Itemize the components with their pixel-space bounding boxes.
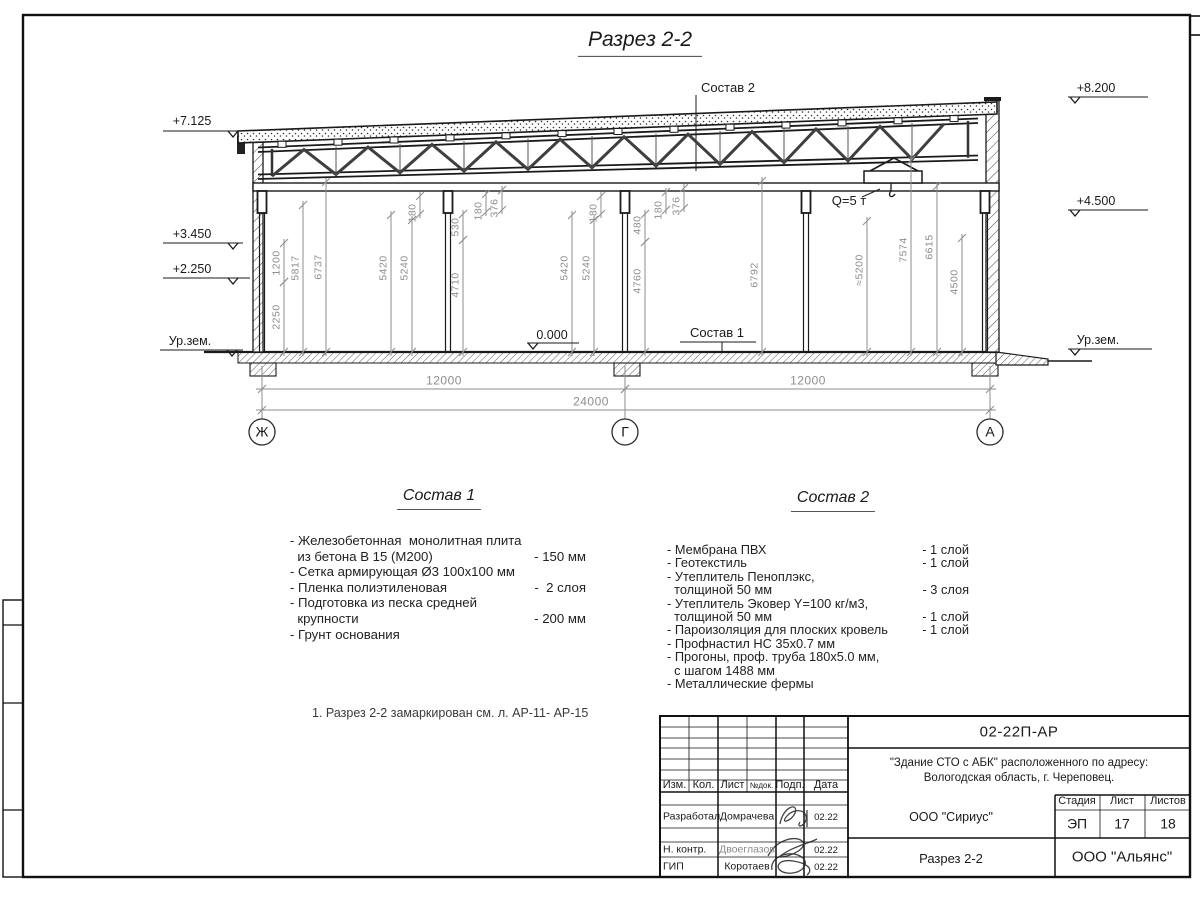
column-corbel (621, 191, 630, 213)
roof-purlin (390, 137, 398, 143)
elevation-arrow (228, 131, 238, 137)
roof-purlin (838, 120, 846, 126)
elevation-arrow (1070, 349, 1080, 355)
tie-beam (253, 183, 999, 191)
column-corbel (981, 191, 990, 213)
drawing-sheet: Разрез 2-2 Состав 2 Состав 1 Q=5 т Соста… (0, 0, 1200, 900)
axis-bubble (612, 419, 638, 445)
roof-purlin (502, 133, 510, 139)
elevation-arrow (1070, 210, 1080, 216)
roof-purlin (446, 135, 454, 141)
roof-purlin (782, 122, 790, 128)
elevation-arrow (528, 343, 538, 349)
axis-bubble (249, 419, 275, 445)
roof-purlin (278, 141, 286, 147)
roof-purlin (894, 118, 902, 124)
elevation-arrow (228, 278, 238, 284)
roof-purlin (558, 131, 566, 137)
title-block-grid (660, 716, 1190, 877)
section-drawing-canvas (0, 0, 1200, 900)
roof-purlin (726, 124, 734, 130)
roof-purlin (614, 129, 622, 135)
roof-purlin (334, 139, 342, 145)
column-corbel (802, 191, 811, 213)
roof-purlin (950, 116, 958, 122)
elevation-arrow (228, 243, 238, 249)
column-corbel (258, 191, 267, 213)
elevation-arrow (1070, 97, 1080, 103)
roof-purlin (670, 126, 678, 132)
axis-bubble (977, 419, 1003, 445)
column-corbel (444, 191, 453, 213)
